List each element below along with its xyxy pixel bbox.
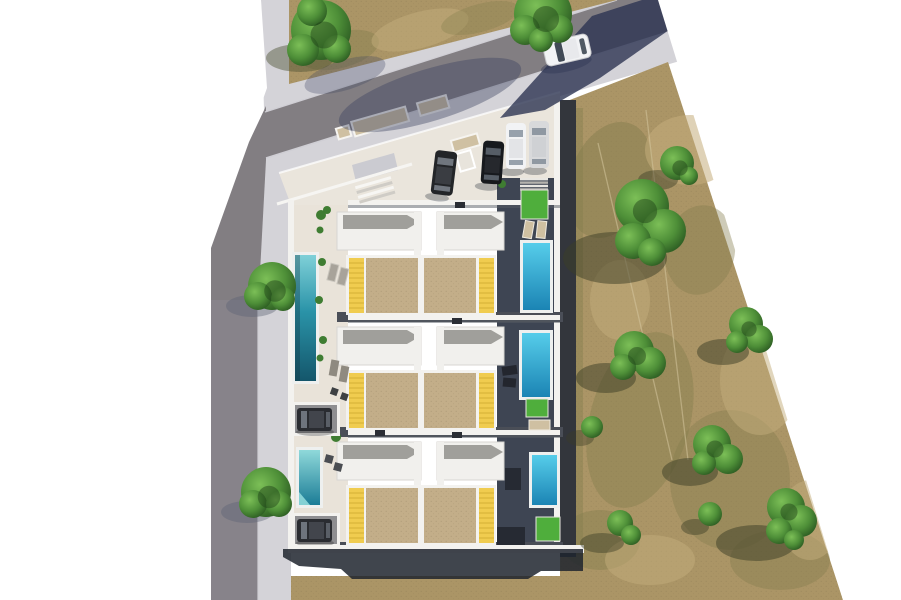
patio-texture — [366, 488, 418, 543]
deck-stairs — [520, 181, 548, 183]
rooftop-unit — [375, 430, 385, 436]
tree-canopy — [581, 416, 603, 438]
car-roof — [309, 411, 324, 428]
car-rear-glass — [326, 523, 330, 538]
tree-canopy — [621, 525, 641, 545]
tree — [581, 416, 603, 438]
roof-arm-right — [437, 212, 444, 260]
tree-canopy-core — [741, 321, 756, 336]
awning-left — [349, 258, 364, 313]
car-windshield — [532, 128, 546, 135]
shrub — [318, 258, 326, 266]
car-roof — [509, 139, 523, 158]
east-pool — [522, 333, 550, 397]
roof-arm-left — [414, 327, 421, 375]
pool-edge-shade — [295, 255, 300, 381]
roof-shade-right — [443, 330, 503, 344]
awning-right — [479, 258, 494, 313]
east-divider-wall — [497, 430, 560, 434]
road-west-asphalt — [211, 300, 258, 600]
tree-canopy — [529, 28, 553, 52]
east-pool — [532, 455, 557, 505]
car-roof — [484, 157, 500, 174]
shrub — [317, 355, 324, 362]
tree-shadow — [580, 533, 624, 553]
roof-shade-left — [343, 445, 419, 459]
shrub — [319, 336, 327, 344]
deck-stairs — [520, 185, 548, 187]
shrub — [323, 206, 331, 214]
tree-canopy-core — [533, 6, 559, 32]
tree-canopy-core — [628, 347, 646, 365]
lawn-patch — [536, 517, 560, 541]
tree-canopy-core — [672, 160, 687, 175]
tree-canopy-core — [311, 22, 338, 49]
awning-right — [479, 488, 494, 543]
car-windshield — [486, 148, 501, 156]
lawn-patch — [521, 190, 548, 219]
tree-canopy — [638, 238, 666, 266]
car-roof — [309, 522, 324, 539]
deck-mat — [529, 420, 550, 430]
roof-shade-right — [443, 215, 503, 229]
tree-canopy-core — [706, 440, 723, 457]
tree-canopy — [784, 530, 804, 550]
roof-arm-right — [437, 327, 444, 375]
awning-left — [349, 488, 364, 543]
boundary-wall-shade — [576, 108, 583, 555]
patio-texture — [424, 488, 476, 543]
patio-texture — [424, 373, 476, 428]
roof-arm-left — [414, 442, 421, 490]
boundary-wall — [560, 100, 576, 557]
car-windshield — [301, 522, 307, 539]
car-rear-glass — [532, 159, 546, 164]
dark-canopy — [497, 527, 525, 546]
shrub — [315, 296, 323, 304]
car-rear-glass — [509, 160, 523, 165]
aerial-site-plan-svg — [0, 0, 901, 600]
east-divider-wall — [497, 315, 560, 319]
car-rear-glass — [484, 174, 499, 180]
tree — [698, 502, 722, 526]
patio-texture — [366, 258, 418, 313]
awning-right — [479, 373, 494, 428]
patio-texture — [424, 258, 476, 313]
site-plan-render — [0, 0, 901, 600]
deck-chair — [503, 377, 517, 387]
roof-shade-left — [343, 330, 419, 344]
deck-stairs — [520, 178, 548, 180]
car-roof — [435, 166, 453, 185]
rooftop-unit — [455, 202, 465, 208]
car-shadow — [500, 168, 524, 176]
awning-left — [349, 373, 364, 428]
tree-canopy-core — [780, 503, 797, 520]
roof-shade-right — [443, 445, 503, 459]
roof-arm-left — [414, 212, 421, 260]
tree-canopy-core — [633, 199, 657, 223]
car-windshield — [509, 130, 523, 137]
car-roof — [532, 137, 546, 157]
rooftop-unit — [452, 432, 462, 438]
lawn-patch — [526, 399, 548, 417]
car-rear-glass — [326, 412, 330, 427]
rooftop-unit — [452, 318, 462, 324]
sun-lounger — [536, 221, 547, 239]
shrub — [317, 227, 324, 234]
roof-arm-right — [437, 442, 444, 490]
tree-canopy — [698, 502, 722, 526]
tree-canopy-core — [258, 486, 281, 509]
tree-canopy-core — [264, 280, 286, 302]
car-windshield — [301, 411, 307, 428]
car-shadow — [523, 167, 547, 175]
deck-sofa — [505, 468, 521, 490]
east-pool — [523, 243, 550, 310]
patio-texture — [366, 373, 418, 428]
roof-shade-left — [343, 215, 419, 229]
